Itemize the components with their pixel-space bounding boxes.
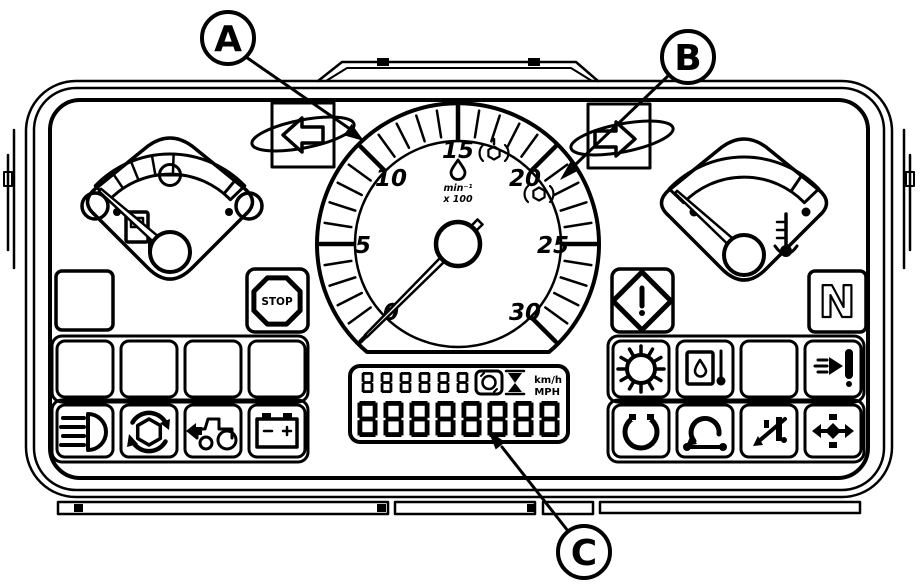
- coolant-temperature-gauge: [662, 139, 827, 280]
- top-tab-clip-right: [528, 58, 540, 66]
- right-indicator-panel: N: [608, 269, 866, 462]
- gauge-tick: [791, 175, 802, 192]
- left-blank-square: [56, 271, 113, 330]
- sun-spike: [621, 377, 627, 381]
- right-side-mount: [904, 130, 914, 268]
- tach-number-25: 25: [537, 233, 569, 259]
- left-middle-row: [52, 336, 308, 402]
- tach-number-30: 30: [509, 300, 541, 326]
- fuel-gauge-hub: [150, 232, 190, 272]
- lcd-unit-mph: MPH: [534, 387, 560, 398]
- gauge-tick: [152, 156, 155, 176]
- temp-gauge-scale-band: [669, 157, 819, 203]
- fuel-gauge-full-dot: [225, 208, 233, 216]
- temp-gauge-hot-dot: [802, 208, 811, 217]
- wheel-drive-icon: [753, 417, 787, 446]
- headlight-icon: [61, 414, 106, 450]
- thermometer-icon: [775, 214, 797, 257]
- fuel-gauge-right-end-circle: [236, 193, 262, 219]
- fuel-gauge: [82, 138, 262, 279]
- warning-diamond-icon: [613, 272, 671, 330]
- top-tab: [318, 62, 598, 81]
- axle-rotation-icon: [683, 418, 727, 451]
- diagram-page: 0 5 10 15 20 25 30 min⁻¹ x 100: [0, 0, 921, 587]
- bottom-tab-strip: [58, 502, 860, 514]
- neutral-indicator: N: [819, 277, 856, 328]
- top-tab-inner: [326, 68, 592, 81]
- tach-unit-line1: min⁻¹: [443, 183, 472, 194]
- stop-octagon: STOP: [254, 278, 300, 324]
- sun-spike: [630, 383, 634, 389]
- callout-b-label: B: [674, 38, 701, 79]
- right-turn-signal: [568, 104, 675, 168]
- sun-spike: [655, 377, 661, 381]
- tachometer-hub: [436, 222, 480, 266]
- gauge-tick: [131, 162, 138, 181]
- left-turn-signal: [249, 103, 356, 167]
- left-mid-square-2: [121, 341, 177, 397]
- hitch-arrow-icon: [815, 349, 853, 387]
- pto-rotation-icon: [127, 413, 170, 451]
- differential-lock-icon: [812, 414, 854, 448]
- left-mid-square-4: [249, 341, 305, 397]
- sun-spike: [621, 358, 627, 362]
- left-side-mount: [4, 130, 14, 268]
- callout-b: B: [560, 31, 714, 180]
- tractor-arrow-icon: [186, 419, 236, 449]
- right-middle-row: [608, 336, 864, 402]
- gauge-tick: [112, 172, 123, 189]
- left-mid-square-3: [185, 341, 241, 397]
- sun-spike: [630, 349, 634, 355]
- left-indicator-panel: STOP: [52, 269, 308, 462]
- oil-temperature-icon: [687, 351, 726, 386]
- sun-spike: [655, 358, 661, 362]
- top-tab-clip-left: [377, 58, 389, 66]
- tach-number-10: 10: [375, 166, 407, 192]
- temp-gauge-hub: [724, 235, 764, 275]
- temp-gauge-ticks: [791, 175, 802, 192]
- instrument-cluster-illustration: 0 5 10 15 20 25 30 min⁻¹ x 100: [0, 0, 921, 587]
- gauge-tick: [224, 178, 237, 193]
- stop-label: STOP: [261, 296, 293, 308]
- tachometer: 0 5 10 15 20 25 30 min⁻¹ x 100: [317, 103, 599, 352]
- tach-unit-line2: x 100: [442, 194, 473, 205]
- lcd-unit-kmh: km/h: [534, 375, 562, 386]
- callout-a: A: [202, 12, 364, 141]
- sun-spike: [649, 349, 653, 355]
- left-mid-square-1: [57, 341, 113, 397]
- callout-c-label: C: [571, 533, 597, 574]
- right-mid-square-3: [741, 341, 797, 397]
- tach-number-5: 5: [355, 233, 371, 259]
- battery-icon: [257, 413, 297, 447]
- fuel-gauge-scale-band: [95, 154, 245, 200]
- sun-spike: [649, 383, 653, 389]
- glow-plug-icon: [618, 346, 664, 392]
- pto-shaft-icon: [625, 411, 657, 448]
- lcd-display: km/h MPH: [350, 366, 568, 442]
- callout-c: C: [488, 430, 610, 578]
- callout-a-label: A: [214, 19, 242, 60]
